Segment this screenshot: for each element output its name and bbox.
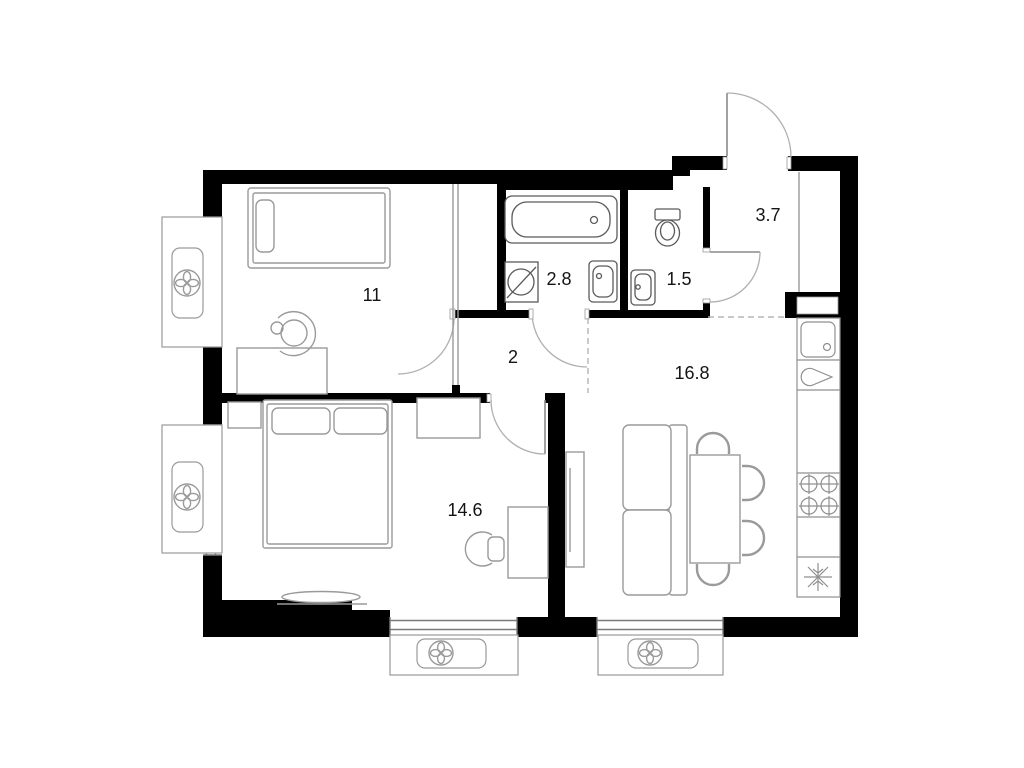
vent-unit-left-bottom [162, 425, 222, 553]
room-label-hallway: 3.7 [755, 205, 780, 225]
vent-unit-bottom-bedroom [390, 635, 518, 675]
washing-machine-icon [505, 262, 538, 302]
wall-niche [797, 297, 838, 314]
floor-plan-page: 11 2.8 1.5 3.7 2 16.8 14.6 [0, 0, 1024, 768]
kitchen-sink [801, 322, 835, 357]
floor-plan-drawing: 11 2.8 1.5 3.7 2 16.8 14.6 [0, 0, 1024, 768]
desk [237, 348, 327, 394]
double-bed [263, 400, 392, 548]
dresser [417, 398, 480, 438]
kitchen-counter [797, 318, 840, 597]
bathtub [505, 196, 617, 243]
bathroom-sink [589, 261, 617, 302]
tv-console [566, 452, 584, 567]
room-label-bedroom-2: 14.6 [447, 500, 482, 520]
toilet-bowl [655, 209, 680, 246]
room-label-toilet: 1.5 [666, 269, 691, 289]
single-bed [248, 188, 390, 268]
room-label-kitchen-living: 16.8 [674, 363, 709, 383]
fridge-snowflake-icon [804, 563, 832, 591]
room-label-bathroom: 2.8 [546, 269, 571, 289]
toilet-sink [631, 270, 655, 305]
vent-unit-bottom-kitchen [598, 635, 723, 675]
room-label-bedroom-1: 11 [363, 285, 382, 305]
nightstand [228, 402, 261, 428]
room-label-corridor: 2 [508, 347, 518, 367]
sofa [623, 425, 687, 595]
dining-table [690, 455, 740, 563]
desk [508, 507, 548, 578]
vent-unit-left-top [162, 217, 222, 347]
